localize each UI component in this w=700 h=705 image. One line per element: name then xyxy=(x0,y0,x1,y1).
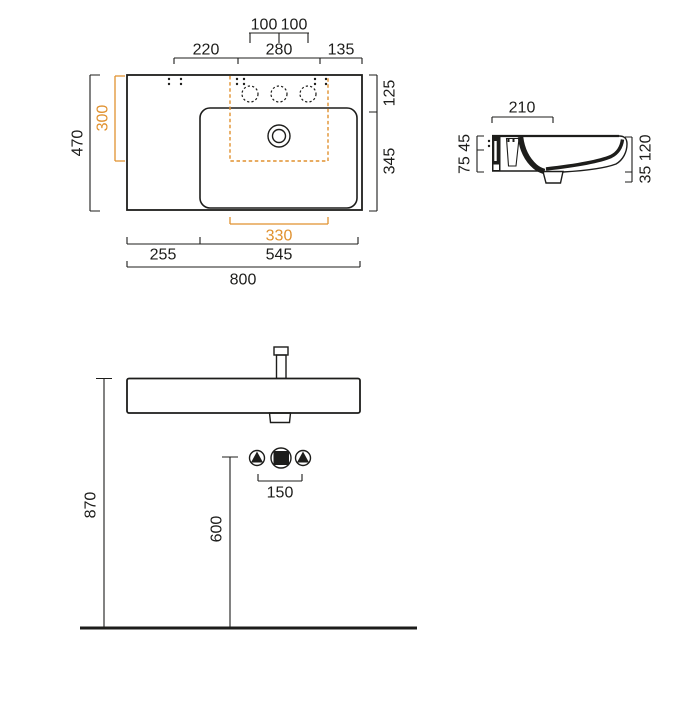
washbasin-dimension-drawing: 100 100 220 280 135 470 300 125 345 xyxy=(0,0,700,700)
dim-bowl-width: 330 xyxy=(230,217,328,245)
dim-depth-front-label: 345 xyxy=(382,148,399,175)
dim-tap-pitch-left-label: 100 xyxy=(251,17,278,34)
connection-symbols xyxy=(250,448,311,468)
dim-bottom-row: 255 545 xyxy=(127,237,358,264)
dim-depth-total: 470 xyxy=(70,75,101,211)
dim-width-total: 800 xyxy=(127,261,360,289)
dim-bowl-depth: 300 xyxy=(95,76,126,161)
dim-rim-height: 870 xyxy=(83,379,113,629)
dim-tap-pitch: 100 100 xyxy=(249,17,309,44)
dim-outlet-height: 600 xyxy=(209,457,239,628)
dim-depth-back-label: 125 xyxy=(382,80,399,107)
section-wall-notch xyxy=(494,165,500,171)
section-overflow-channel xyxy=(507,139,520,167)
dim-connection-pitch-label: 150 xyxy=(267,485,294,502)
dim-side-left-heights-label: 75 45 xyxy=(457,134,474,174)
technical-drawing-canvas: 100 100 220 280 135 470 300 125 345 xyxy=(0,0,700,700)
waste-connection-icon xyxy=(271,448,291,468)
dim-width-total-label: 800 xyxy=(230,272,257,289)
dim-side-left-heights: 75 45 xyxy=(457,134,485,174)
dim-deck-left-label: 220 xyxy=(193,42,220,59)
dim-right-depths: 125 345 xyxy=(369,75,399,211)
dim-tap-pitch-right-label: 100 xyxy=(281,17,308,34)
basin-body-outline xyxy=(127,75,362,210)
dim-bowl-width-label: 330 xyxy=(266,228,293,245)
dim-deck-depth: 210 xyxy=(492,100,553,124)
dim-bottom-right-label: 545 xyxy=(266,247,293,264)
side-view-section: 210 75 45 35 120 xyxy=(457,100,655,184)
water-supply-left-icon xyxy=(250,451,265,466)
dim-bottom-left-label: 255 xyxy=(150,247,177,264)
dim-deck-center-label: 280 xyxy=(266,42,293,59)
dim-outlet-height-label: 600 xyxy=(209,516,226,543)
dim-deck-depth-label: 210 xyxy=(509,100,536,117)
dim-depth-total-label: 470 xyxy=(70,130,87,157)
section-channel-marks xyxy=(488,138,515,147)
section-wall-slot xyxy=(494,141,496,161)
front-view-elevation: 150 870 600 xyxy=(80,347,417,628)
section-bowl-wall xyxy=(521,137,545,172)
dim-deck-right-label: 135 xyxy=(328,42,355,59)
water-supply-right-icon xyxy=(296,451,311,466)
section-drain-trap xyxy=(543,172,563,184)
dim-side-right-heights: 35 120 xyxy=(625,134,655,183)
dim-deck-row: 220 280 135 xyxy=(174,42,362,65)
dim-rim-height-label: 870 xyxy=(83,492,100,519)
front-waste-outlet xyxy=(270,413,291,423)
top-view-plan: 100 100 220 280 135 470 300 125 345 xyxy=(70,17,399,289)
section-bowl-bottom xyxy=(546,140,623,170)
tap-icon xyxy=(274,347,288,379)
dim-side-right-heights-label: 35 120 xyxy=(638,134,655,183)
dim-connection-pitch: 150 xyxy=(258,474,302,502)
front-basin-body xyxy=(127,379,360,414)
dim-bowl-depth-label: 300 xyxy=(95,105,112,132)
